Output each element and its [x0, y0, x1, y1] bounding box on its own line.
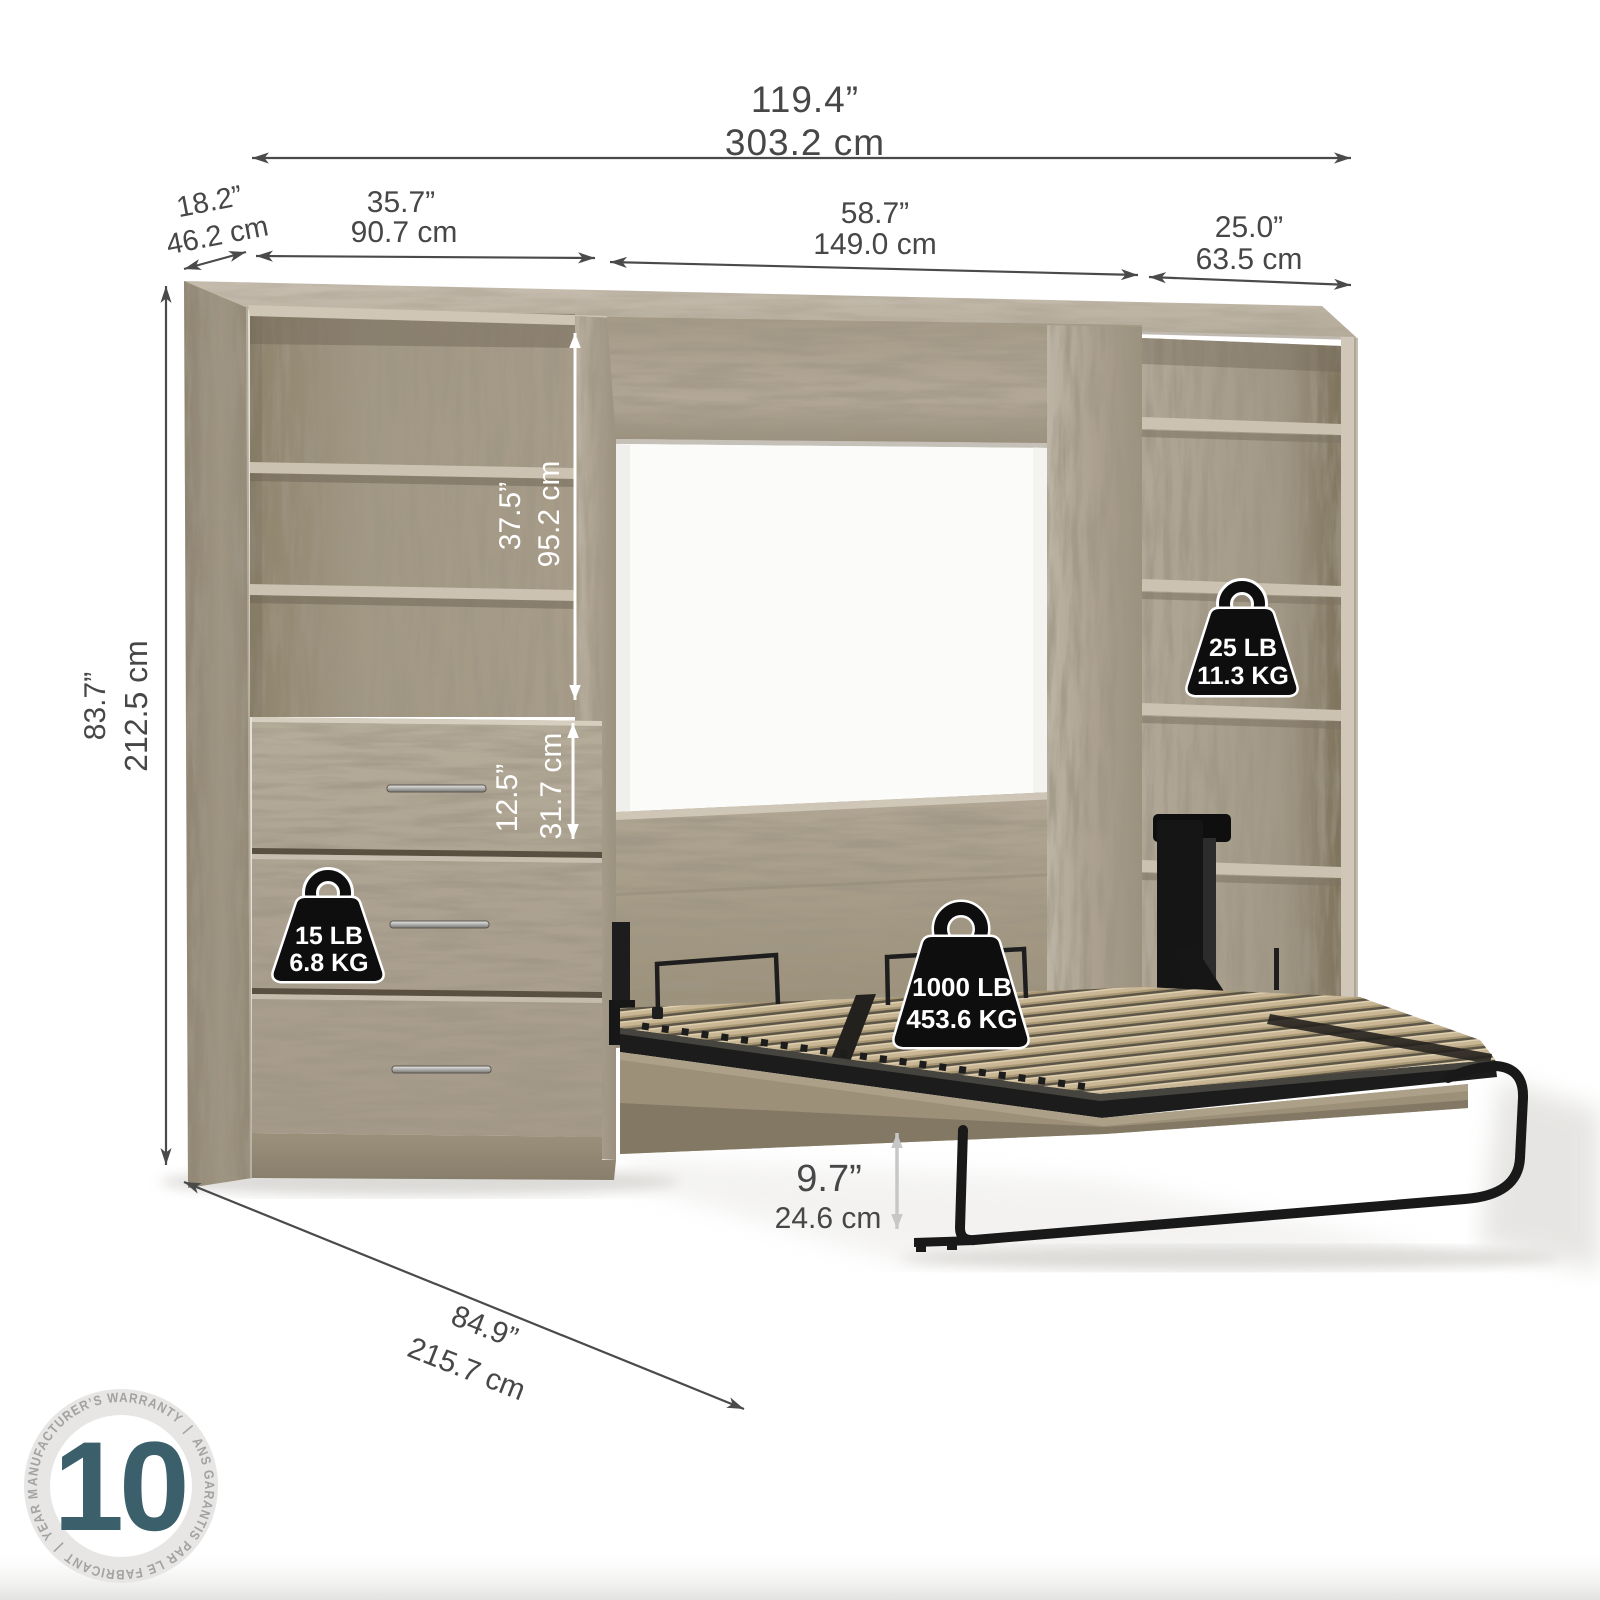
svg-text:24.6 cm: 24.6 cm [775, 1202, 882, 1235]
svg-text:303.2 cm: 303.2 cm [725, 122, 885, 163]
svg-text:1000 LB: 1000 LB [912, 972, 1012, 1002]
svg-text:63.5 cm: 63.5 cm [1196, 243, 1303, 276]
svg-text:58.7”: 58.7” [841, 197, 909, 230]
svg-text:25 LB: 25 LB [1209, 634, 1277, 662]
svg-text:12.5”: 12.5” [491, 764, 524, 832]
svg-text:83.7”: 83.7” [79, 672, 112, 740]
svg-text:212.5 cm: 212.5 cm [118, 640, 154, 772]
svg-text:11.3 KG: 11.3 KG [1197, 662, 1289, 690]
svg-text:35.7”: 35.7” [367, 186, 435, 219]
svg-text:149.0 cm: 149.0 cm [813, 228, 936, 261]
svg-text:9.7”: 9.7” [796, 1158, 861, 1200]
svg-text:10: 10 [53, 1415, 185, 1557]
svg-text:6.8 KG: 6.8 KG [289, 949, 368, 977]
svg-text:15 LB: 15 LB [295, 922, 363, 950]
svg-text:95.2 cm: 95.2 cm [533, 461, 566, 568]
svg-text:31.7 cm: 31.7 cm [535, 733, 568, 840]
svg-text:453.6 KG: 453.6 KG [906, 1004, 1017, 1034]
svg-text:119.4”: 119.4” [751, 79, 859, 120]
svg-text:90.7 cm: 90.7 cm [351, 216, 458, 249]
svg-text:25.0”: 25.0” [1215, 211, 1283, 244]
svg-text:37.5”: 37.5” [494, 482, 527, 550]
